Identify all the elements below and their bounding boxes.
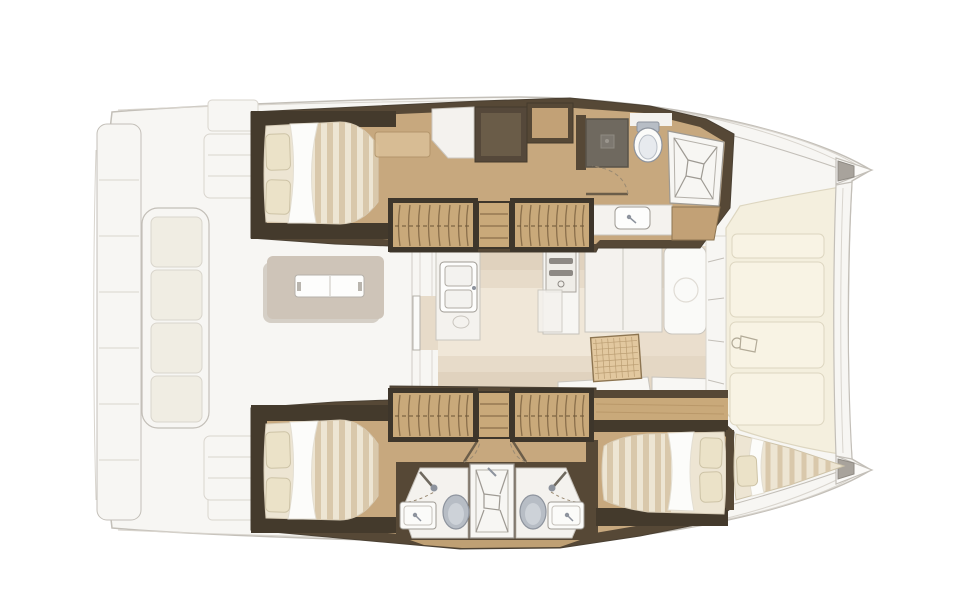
shower-tray <box>668 131 724 206</box>
washbasin-counter <box>593 205 672 235</box>
bow-bulkhead <box>726 430 734 510</box>
central-shower <box>470 464 514 538</box>
rattan-coffee-table <box>591 334 642 381</box>
cockpit-table-area <box>263 256 384 323</box>
pillow <box>699 438 722 469</box>
starboard-forward-cabin <box>586 390 734 535</box>
pillow <box>265 134 290 171</box>
pillow <box>699 472 722 503</box>
stair-landing <box>478 392 510 438</box>
sliding-door-leaf <box>413 296 420 350</box>
sunpad-panels <box>730 234 824 425</box>
port-companionway-stairs <box>388 198 594 252</box>
pillow <box>265 478 290 513</box>
washbasin <box>615 207 650 229</box>
forward-seat <box>664 246 706 334</box>
vanity-desk <box>375 132 430 157</box>
shower-stall <box>586 119 628 167</box>
toilet <box>634 122 662 162</box>
stair-landing <box>478 202 510 248</box>
bed-sheet <box>668 432 694 511</box>
salon <box>436 236 726 410</box>
pillow <box>265 432 290 469</box>
pillow <box>736 455 758 486</box>
transom-platform <box>94 124 141 520</box>
galley-faucet-icon <box>472 286 476 290</box>
floor-plan-svg <box>0 0 979 612</box>
catamaran-floor-plan <box>0 0 979 612</box>
washbasin <box>548 502 584 529</box>
port-hull <box>251 98 734 252</box>
vanity-block <box>672 207 720 240</box>
pillow <box>265 180 290 215</box>
cockpit-table <box>295 275 364 297</box>
stern-bench <box>142 208 209 428</box>
galley-counter <box>436 252 480 340</box>
washbasin <box>400 502 436 529</box>
side-shelf <box>592 398 728 420</box>
cockpit-side-console-top <box>204 134 256 198</box>
cockpit-side-console-bottom <box>204 436 256 500</box>
salon-front-windows <box>706 236 726 410</box>
bench-cushions <box>151 217 202 422</box>
starboard-companionway-stairs <box>388 388 594 442</box>
forward-crossbeam <box>834 182 852 459</box>
